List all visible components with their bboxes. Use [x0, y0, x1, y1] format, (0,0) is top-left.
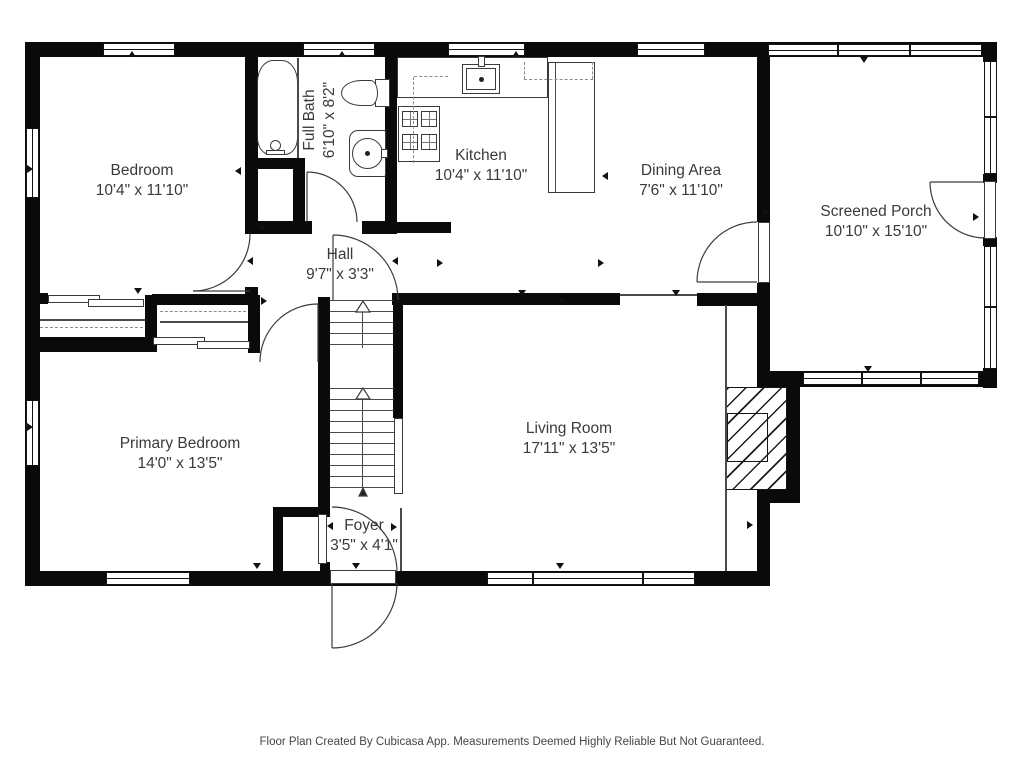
- fireplace-wall-right: [786, 387, 800, 490]
- wall-marker-icon: [128, 51, 136, 57]
- window: [26, 400, 39, 466]
- closet-rod-line: [40, 327, 143, 328]
- window: [921, 372, 979, 385]
- stove-burner-icon: [402, 111, 418, 127]
- closet-sliding-panel: [88, 299, 144, 307]
- wall-marker-icon: [763, 208, 769, 216]
- wall-marker-icon: [747, 521, 753, 529]
- floor-plan-canvas: Bedroom 10'4" x 11'10" Full Bath 6'10" x…: [0, 0, 1024, 768]
- room-dims: 9'7" x 3'3": [306, 265, 374, 285]
- wall-marker-icon: [512, 51, 520, 57]
- room-name: Bedroom: [96, 161, 188, 181]
- wall-exterior-left: [25, 42, 40, 586]
- stairs-walk-line: [362, 394, 363, 489]
- closet-shelf-line: [40, 319, 145, 321]
- window: [768, 44, 838, 56]
- foyer-closet-door: [318, 514, 327, 564]
- room-name: Kitchen: [435, 146, 527, 166]
- front-door-outer-arc: [332, 583, 397, 648]
- room-name: Full Bath: [300, 45, 320, 195]
- stove-burner-icon: [421, 111, 437, 127]
- fireplace-wall-bottom: [757, 490, 800, 503]
- room-label-dining-area: Dining Area 7'6" x 11'10": [639, 161, 723, 200]
- primary-bedroom-door-arc: [260, 304, 318, 362]
- stove-burner-icon: [402, 134, 418, 150]
- fireplace-wall-top: [757, 371, 800, 387]
- front-door: [330, 570, 396, 584]
- window: [984, 307, 997, 369]
- wall-marker-icon: [602, 172, 608, 180]
- wall-marker-icon: [352, 563, 360, 569]
- wall-marker-icon: [860, 57, 868, 63]
- wall-marker-icon: [864, 366, 872, 372]
- upper-cabinet-line: [524, 79, 593, 80]
- window: [862, 372, 921, 385]
- window: [984, 117, 997, 174]
- upper-cabinet-line: [413, 77, 414, 163]
- window: [910, 44, 982, 56]
- wall-living-right-lower: [757, 503, 770, 586]
- wall-marker-icon: [253, 563, 261, 569]
- living-room-wall-line: [725, 305, 727, 571]
- sink-drain-icon: [365, 151, 370, 156]
- kitchen-faucet-icon: [478, 56, 485, 67]
- foyer-edge-line: [400, 508, 402, 571]
- window: [106, 572, 190, 585]
- wall-bedroom-bottom-stub: [30, 293, 48, 304]
- wall-marker-icon: [437, 259, 443, 267]
- window: [487, 572, 533, 585]
- room-name: Hall: [306, 245, 374, 265]
- room-dims: 7'6" x 11'10": [639, 181, 723, 201]
- room-label-kitchen: Kitchen 10'4" x 11'10": [435, 146, 527, 185]
- wall-marker-icon: [258, 225, 266, 231]
- wall-marker-icon: [392, 257, 398, 265]
- stairs-walk-line: [362, 306, 363, 348]
- room-name: Living Room: [523, 419, 615, 439]
- wall-porch-left-lower: [757, 283, 770, 375]
- window: [984, 61, 997, 117]
- wall-left-closet-bottom: [30, 337, 157, 352]
- bathroom-faucet-icon: [381, 149, 388, 158]
- porch-side-door-arc: [930, 182, 985, 238]
- porch-dining-door-arc: [697, 222, 757, 282]
- toilet-bowl: [341, 80, 378, 106]
- wall-marker-icon: [261, 297, 267, 305]
- wall-marker-icon: [558, 297, 566, 303]
- window: [103, 43, 175, 56]
- porch-dining-doorway: [758, 222, 770, 283]
- peninsula-edge-line: [555, 63, 556, 192]
- window: [643, 572, 695, 585]
- room-dims: 14'0" x 13'5": [120, 454, 241, 474]
- wall-marker-icon: [27, 423, 33, 431]
- closet-shelf-line: [160, 321, 248, 323]
- porch-side-door: [984, 181, 996, 239]
- room-dims: 10'4" x 11'10": [96, 181, 188, 201]
- window: [803, 372, 862, 385]
- wall-marker-icon: [247, 257, 253, 265]
- footer-disclaimer: Floor Plan Created By Cubicasa App. Meas…: [260, 736, 765, 748]
- wall-marker-icon: [134, 288, 142, 294]
- upper-cabinet-line: [592, 62, 593, 79]
- wall-right-closet-top: [152, 294, 250, 305]
- room-label-screened-porch: Screened Porch 10'10" x 15'10": [820, 202, 931, 241]
- wall-porch-right-1: [983, 42, 997, 62]
- room-dims: 17'11" x 13'5": [523, 439, 615, 459]
- room-label-foyer: Foyer 3'5" x 4'1": [330, 516, 398, 555]
- room-label-bedroom: Bedroom 10'4" x 11'10": [96, 161, 188, 200]
- room-name: Primary Bedroom: [120, 434, 241, 454]
- fireplace-firebox: [727, 413, 768, 462]
- room-label-primary-bedroom: Primary Bedroom 14'0" x 13'5": [120, 434, 241, 473]
- closet-rod-line: [160, 311, 246, 312]
- window: [533, 572, 643, 585]
- wall-porch-left-upper: [757, 42, 770, 222]
- room-label-hall: Hall 9'7" x 3'3": [306, 245, 374, 284]
- room-name: Screened Porch: [820, 202, 931, 222]
- wall-marker-icon: [556, 563, 564, 569]
- window: [637, 43, 705, 56]
- room-dims: 6'10" x 8'2": [320, 45, 340, 195]
- room-name: Foyer: [330, 516, 398, 536]
- tub-alcove-line: [297, 58, 299, 158]
- wall-marker-icon: [598, 259, 604, 267]
- kitchen-sink-drain-icon: [479, 77, 484, 82]
- wall-living-top-a: [392, 293, 620, 305]
- upper-cabinet-line: [524, 62, 525, 79]
- window: [838, 44, 910, 56]
- wall-stair-left: [318, 297, 330, 517]
- window: [26, 128, 39, 198]
- wall-kitchen-bottom: [390, 222, 451, 233]
- wall-stair-right: [393, 303, 403, 418]
- wall-marker-icon: [518, 290, 526, 296]
- upper-cabinet-line: [414, 76, 448, 77]
- room-dims: 10'10" x 15'10": [820, 222, 931, 242]
- window: [984, 246, 997, 307]
- stair-railing: [394, 418, 403, 494]
- wall-kitchen-left: [385, 42, 397, 233]
- room-label-living-room: Living Room 17'11" x 13'5": [523, 419, 615, 458]
- tub-faucet-bar: [266, 150, 285, 155]
- room-label-full-bath: Full Bath 6'10" x 8'2": [300, 45, 344, 195]
- bedroom-door-arc: [193, 234, 250, 291]
- wall-marker-icon: [235, 167, 241, 175]
- room-dims: 10'4" x 11'10": [435, 166, 527, 186]
- dining-living-opening-line: [620, 294, 697, 296]
- wall-living-top-b: [697, 293, 757, 306]
- wall-marker-icon: [27, 165, 33, 173]
- room-name: Dining Area: [639, 161, 723, 181]
- wall-marker-icon: [973, 213, 979, 221]
- wall-foyer-closet-left: [273, 517, 283, 586]
- room-dims: 3'5" x 4'1": [330, 536, 398, 556]
- wall-marker-icon: [672, 290, 680, 296]
- closet-sliding-panel: [197, 341, 250, 349]
